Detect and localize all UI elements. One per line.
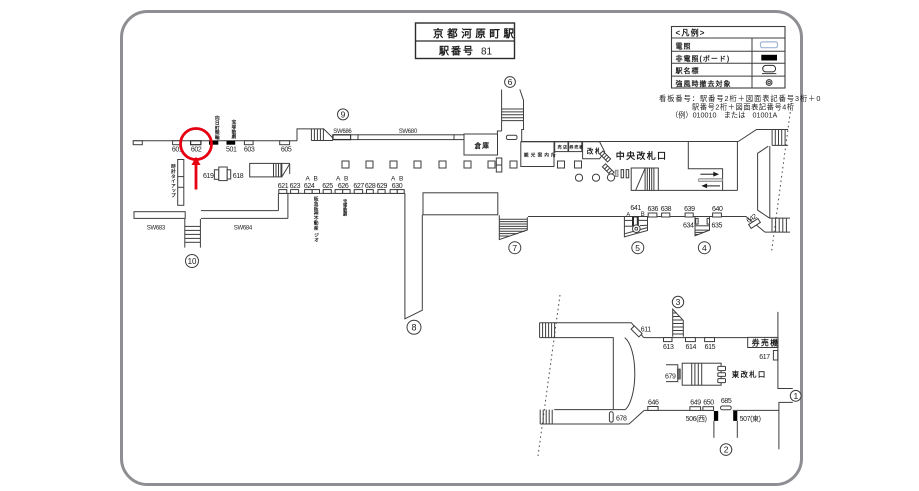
svg-text:強風時撤去対象: 強風時撤去対象 [676,79,732,88]
svg-text:611: 611 [641,326,651,333]
svg-text:倉庫: 倉庫 [474,141,491,150]
svg-text:B: B [641,212,645,218]
svg-text:629: 629 [377,183,388,190]
svg-text:605: 605 [281,146,292,153]
svg-text:650: 650 [703,400,714,407]
svg-text:618: 618 [233,173,244,180]
svg-text:635: 635 [712,223,723,230]
svg-text:613: 613 [663,344,674,351]
svg-text:非電照(ボード): 非電照(ボード) [676,54,731,63]
svg-text:A: A [391,176,396,183]
svg-text:8: 8 [412,323,417,333]
svg-text:B: B [399,176,403,183]
svg-text:SW683: SW683 [147,226,166,232]
svg-text:ジオ: ジオ [313,233,318,244]
svg-text:630: 630 [392,183,403,190]
svg-text:685: 685 [721,398,732,405]
svg-text:SW684: SW684 [234,226,253,232]
svg-text:券売機: 券売機 [569,144,584,151]
svg-text:617: 617 [759,354,770,361]
svg-text:603: 603 [244,146,255,153]
svg-text:623: 623 [290,183,301,190]
svg-text:東改札口: 東改札口 [731,370,767,379]
svg-text:SW686: SW686 [333,129,352,135]
svg-text:9: 9 [341,109,346,119]
svg-text:向日町競輪: 向日町競輪 [214,115,219,141]
svg-text:1: 1 [794,391,799,401]
svg-text:3: 3 [676,297,681,307]
svg-text:券売機: 券売機 [751,337,780,347]
svg-text:A: A [306,176,311,183]
svg-text:626: 626 [338,183,349,190]
svg-text:京都河原町駅: 京都河原町駅 [433,27,518,40]
svg-text:駅番号: 駅番号 [438,45,475,58]
svg-text:640: 640 [712,206,723,213]
svg-text:電照: 電照 [676,41,692,50]
svg-text:602: 602 [191,146,202,153]
svg-text:628: 628 [365,183,376,190]
svg-text:641: 641 [630,205,641,212]
svg-text:636: 636 [648,206,659,213]
svg-text:B: B [344,176,348,183]
svg-text:507(東): 507(東) [740,414,761,423]
svg-text:宝塚歌劇: 宝塚歌劇 [230,119,235,140]
svg-text:駅名標: 駅名標 [676,66,700,75]
svg-text:6: 6 [508,77,513,87]
svg-text:4: 4 [702,243,707,253]
svg-text:B: B [314,176,318,183]
svg-text:627: 627 [353,183,364,190]
svg-text:625: 625 [322,183,333,190]
svg-text:506(西): 506(西) [686,415,707,423]
svg-text:679: 679 [665,374,676,381]
svg-text:678: 678 [616,415,627,422]
svg-text:7: 7 [512,243,517,253]
svg-text:10: 10 [188,257,197,266]
svg-text:A: A [626,213,630,219]
svg-text:624: 624 [304,183,315,190]
svg-text:619: 619 [203,173,214,180]
svg-text:639: 639 [684,206,695,213]
svg-text:A: A [336,176,341,183]
svg-text:2: 2 [724,445,729,455]
svg-text:阪急阪神不動産: 阪急阪神不動産 [313,196,318,232]
svg-text:615: 615 [705,344,716,351]
svg-text:中央改札口: 中央改札口 [616,150,668,161]
svg-text:638: 638 [661,206,672,213]
svg-text:宝塚歌劇: 宝塚歌劇 [342,198,348,218]
svg-text:5: 5 [635,243,640,253]
svg-text:81: 81 [481,47,493,58]
svg-text:（例）010010 または 01001A: （例）010010 または 01001A [671,111,777,120]
svg-text:観光案内所: 観光案内所 [524,151,558,158]
svg-text:SW680: SW680 [399,129,418,135]
svg-text:649: 649 [690,400,701,407]
svg-text:501: 501 [226,146,237,153]
svg-text:<凡例>: <凡例> [676,28,706,38]
svg-text:621: 621 [278,183,289,190]
svg-text:614: 614 [686,344,697,351]
svg-text:売店: 売店 [558,144,569,151]
svg-text:時計タイアップ: 時計タイアップ [170,163,175,199]
svg-text:634: 634 [683,223,694,230]
svg-text:646: 646 [648,400,659,407]
